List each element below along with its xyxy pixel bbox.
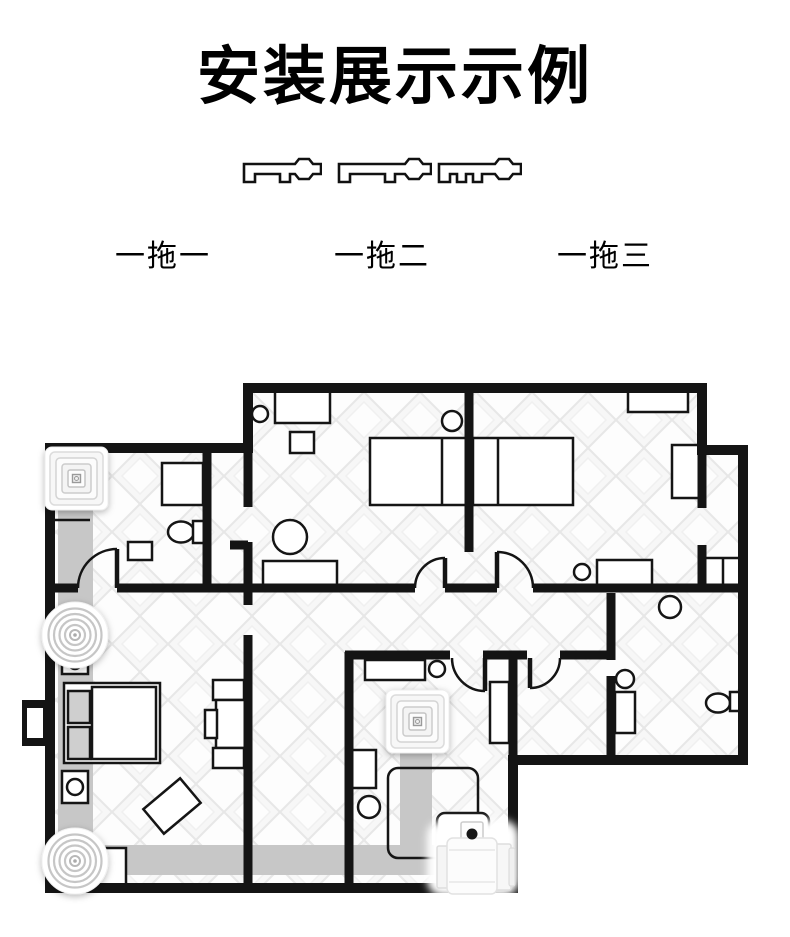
bed [473, 438, 573, 505]
ceiling-cassette-fan-center [386, 690, 449, 753]
round-diffuser-lower [42, 828, 108, 894]
inline-duct-fan-unit [427, 820, 519, 896]
round-diffuser-upper [42, 602, 108, 668]
floor-plan [0, 0, 790, 937]
bed [370, 438, 467, 505]
ceiling-cassette-fan-bathroom [45, 447, 108, 510]
